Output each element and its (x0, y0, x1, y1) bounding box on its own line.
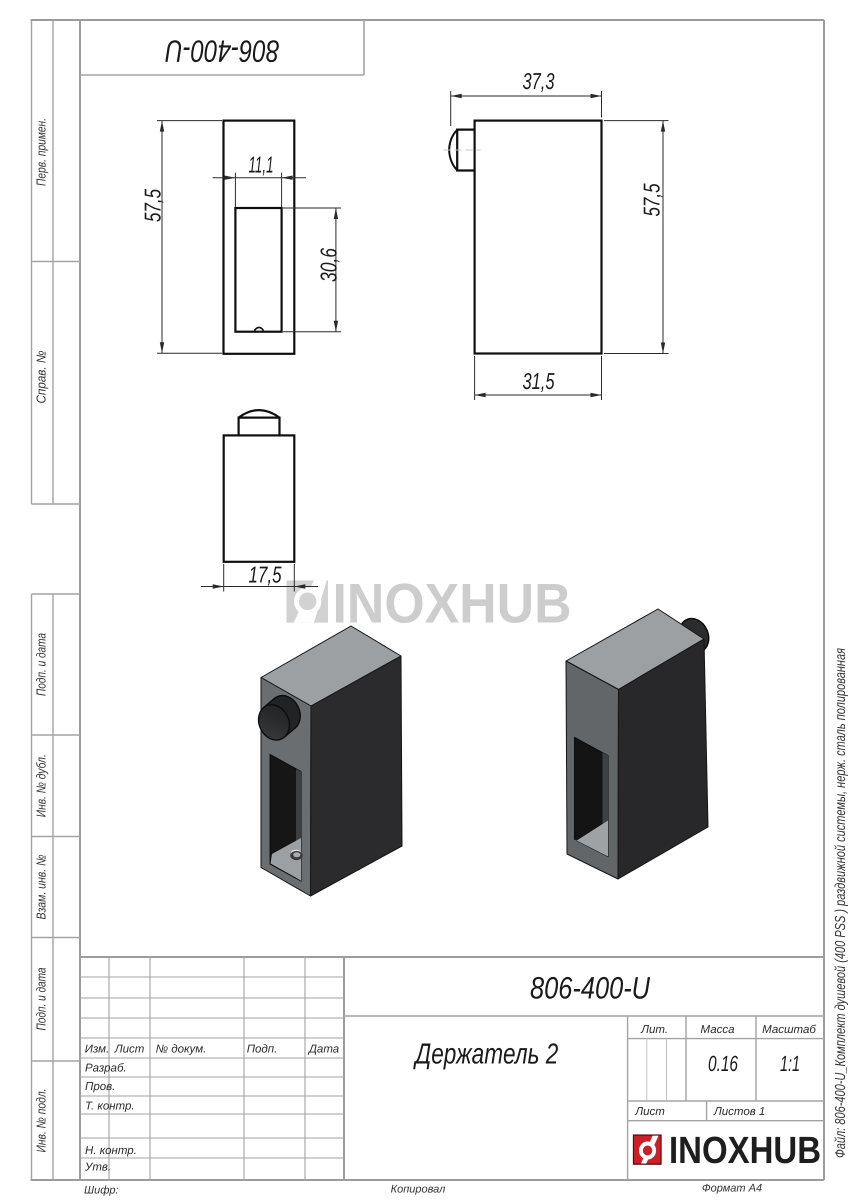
svg-text:INOXHUB: INOXHUB (669, 1130, 821, 1172)
svg-text:Лист: Лист (634, 1106, 665, 1118)
svg-text:806-400-U: 806-400-U (530, 971, 650, 1006)
svg-text:Держатель 2: Держатель 2 (413, 1039, 558, 1071)
svg-text:57,5: 57,5 (639, 183, 665, 216)
svg-text:Н. контр.: Н. контр. (85, 1145, 137, 1157)
svg-text:№ докум.: № докум. (156, 1044, 207, 1056)
svg-text:0.16: 0.16 (708, 1051, 739, 1076)
svg-text:Справ. №: Справ. № (34, 351, 49, 404)
svg-text:Файл: 806-400-U_Комплект душев: Файл: 806-400-U_Комплект душевой (400 PS… (833, 648, 848, 1158)
svg-text:Масштаб: Масштаб (762, 1024, 816, 1036)
svg-text:INOXHUB: INOXHUB (333, 572, 572, 635)
svg-text:Инв. № подл.: Инв. № подл. (34, 1089, 49, 1153)
svg-text:Листов 1: Листов 1 (713, 1106, 765, 1118)
svg-text:Т. контр.: Т. контр. (85, 1101, 135, 1113)
svg-text:Подп. и дата: Подп. и дата (34, 968, 49, 1031)
svg-text:Взам. инв. №: Взам. инв. № (34, 855, 49, 920)
svg-text:Разраб.: Разраб. (85, 1063, 127, 1075)
svg-text:Пров.: Пров. (85, 1081, 115, 1093)
svg-text:11,1: 11,1 (249, 152, 274, 178)
svg-text:Перв. примен.: Перв. примен. (34, 118, 49, 186)
svg-text:17,5: 17,5 (249, 562, 282, 588)
svg-text:Подп. и дата: Подп. и дата (34, 633, 49, 696)
svg-text:Масса: Масса (700, 1024, 734, 1036)
svg-text:Изм.: Изм. (85, 1044, 110, 1056)
svg-text:806-400-U: 806-400-U (165, 33, 279, 68)
svg-text:Формат А4: Формат А4 (702, 1183, 762, 1195)
svg-text:Лит.: Лит. (640, 1024, 668, 1036)
svg-text:Инв. № дубл.: Инв. № дубл. (34, 754, 49, 817)
svg-text:30,6: 30,6 (316, 248, 342, 282)
svg-text:31,5: 31,5 (523, 368, 555, 394)
svg-text:Утв.: Утв. (84, 1162, 111, 1174)
svg-text:Лист: Лист (114, 1044, 145, 1056)
svg-text:57,5: 57,5 (140, 189, 166, 222)
svg-text:37,3: 37,3 (523, 68, 555, 94)
svg-text:Дата: Дата (307, 1044, 339, 1056)
svg-text:Копировал: Копировал (391, 1184, 446, 1196)
svg-text:1:1: 1:1 (780, 1051, 800, 1076)
svg-text:Шифр:: Шифр: (84, 1185, 119, 1197)
svg-text:Подп.: Подп. (247, 1044, 278, 1056)
